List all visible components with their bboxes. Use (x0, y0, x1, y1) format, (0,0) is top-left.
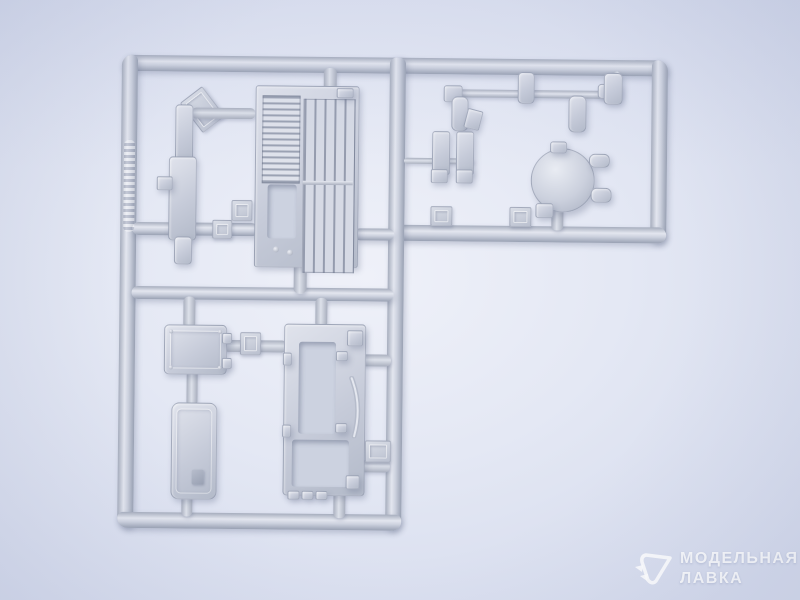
inner-clip (336, 351, 348, 361)
rivet (287, 250, 293, 256)
watermark-line2: ЛАВКА (680, 569, 798, 589)
sprue-frame (0, 0, 800, 600)
part-number-tag (509, 207, 531, 227)
engine-grille-panel (254, 85, 360, 268)
fender-strip-bracket (157, 176, 173, 190)
fender-strip-foot (174, 236, 192, 264)
bracket-foot (431, 169, 448, 183)
edge-clip (283, 353, 292, 366)
long-hatch-panel (170, 402, 217, 499)
rail-right-upper (650, 60, 668, 243)
runner-grille-right (354, 228, 394, 240)
edge-clip (282, 425, 291, 438)
corner-bracket (346, 475, 360, 489)
grille-top-tab (337, 88, 354, 98)
small-cylinder-part (518, 72, 535, 104)
small-cylinder-part (568, 95, 586, 132)
grille-opening (267, 184, 297, 238)
small-cylinder-part (604, 73, 623, 105)
part-number-tag (231, 200, 252, 221)
dome-top-nub (550, 141, 567, 153)
rivet (273, 246, 279, 252)
grate-vertical-bars (302, 99, 356, 274)
hatch-hinge (222, 358, 232, 369)
panel-opening-lower (292, 440, 349, 488)
bottom-tab (301, 491, 313, 500)
watermark: МОДЕЛЬНАЯ ЛАВКА (630, 543, 798, 595)
stub (191, 108, 255, 120)
panel-opening-upper (298, 342, 336, 434)
access-hatch-panel (164, 324, 228, 375)
grate-divider (303, 181, 353, 186)
part-number-tag (365, 440, 391, 462)
part-number-tag (430, 206, 452, 226)
corner-bracket (347, 330, 363, 346)
hatch-hinge (222, 333, 232, 344)
photo-canvas: МОДЕЛЬНАЯ ЛАВКА (0, 0, 800, 600)
bolt (169, 365, 173, 369)
part-number-tag (212, 220, 232, 239)
rail-bottom (117, 512, 401, 531)
dome-latch (535, 203, 553, 218)
dome-hinge-peg (591, 188, 612, 203)
hatch-inner-panel (170, 330, 221, 369)
cursor-triangle-logo (632, 545, 678, 591)
curved-strip-part (346, 376, 365, 438)
bracket-foot (456, 169, 473, 183)
part-number-tag (240, 332, 261, 355)
bottom-tab (287, 491, 299, 500)
runner-middle (131, 286, 393, 302)
louvre-block (262, 95, 301, 183)
cylinder-wedge-bracket (463, 108, 484, 131)
rail-embossed-marking (123, 140, 135, 232)
bolt (169, 329, 173, 333)
bottom-tab (315, 491, 327, 500)
dome-hinge-peg (589, 154, 610, 168)
fender-strip-part (168, 156, 197, 240)
watermark-line1: МОДЕЛЬНАЯ (680, 549, 798, 569)
latch-detail (192, 470, 204, 485)
rail-mid-horizontal (388, 225, 666, 244)
